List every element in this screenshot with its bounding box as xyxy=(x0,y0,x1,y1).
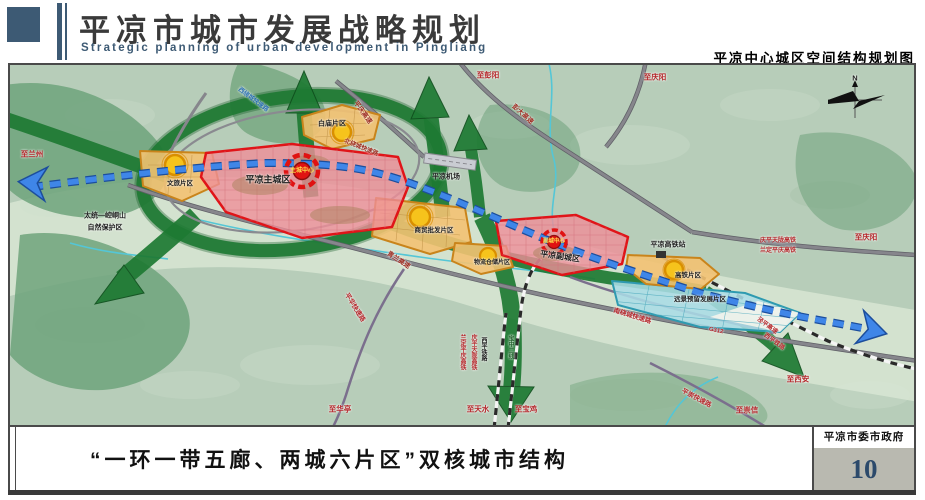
structure-caption: “一环一带五廊、两城六片区”双核城市结构 xyxy=(90,444,569,474)
header-divider-bar xyxy=(57,3,62,60)
header-divider-bar-thin xyxy=(65,3,67,60)
page: 平凉市城市发展战略规划 Strategic planning of urban … xyxy=(0,0,925,500)
page-number: 10 xyxy=(814,448,914,490)
map-frame: 至兰州至彭阳至庆阳至庆阳至西安至崇信至宝鸡至天水至华亭彭大高速平庆高速西绕城快速… xyxy=(8,63,916,427)
footer: “一环一带五廊、两城六片区”双核城市结构 平凉市委市政府 10 xyxy=(8,427,916,490)
page-subtitle: Strategic planning of urban development … xyxy=(81,42,487,54)
hsr-station-marker xyxy=(656,251,666,258)
page-bottom-rule xyxy=(8,490,916,495)
publisher-box: 平凉市委市政府 10 xyxy=(812,427,914,490)
footer-inner-border xyxy=(15,427,16,490)
header-logo-block xyxy=(7,7,40,42)
publisher-name: 平凉市委市政府 xyxy=(814,427,914,448)
map-canvas xyxy=(10,65,914,425)
